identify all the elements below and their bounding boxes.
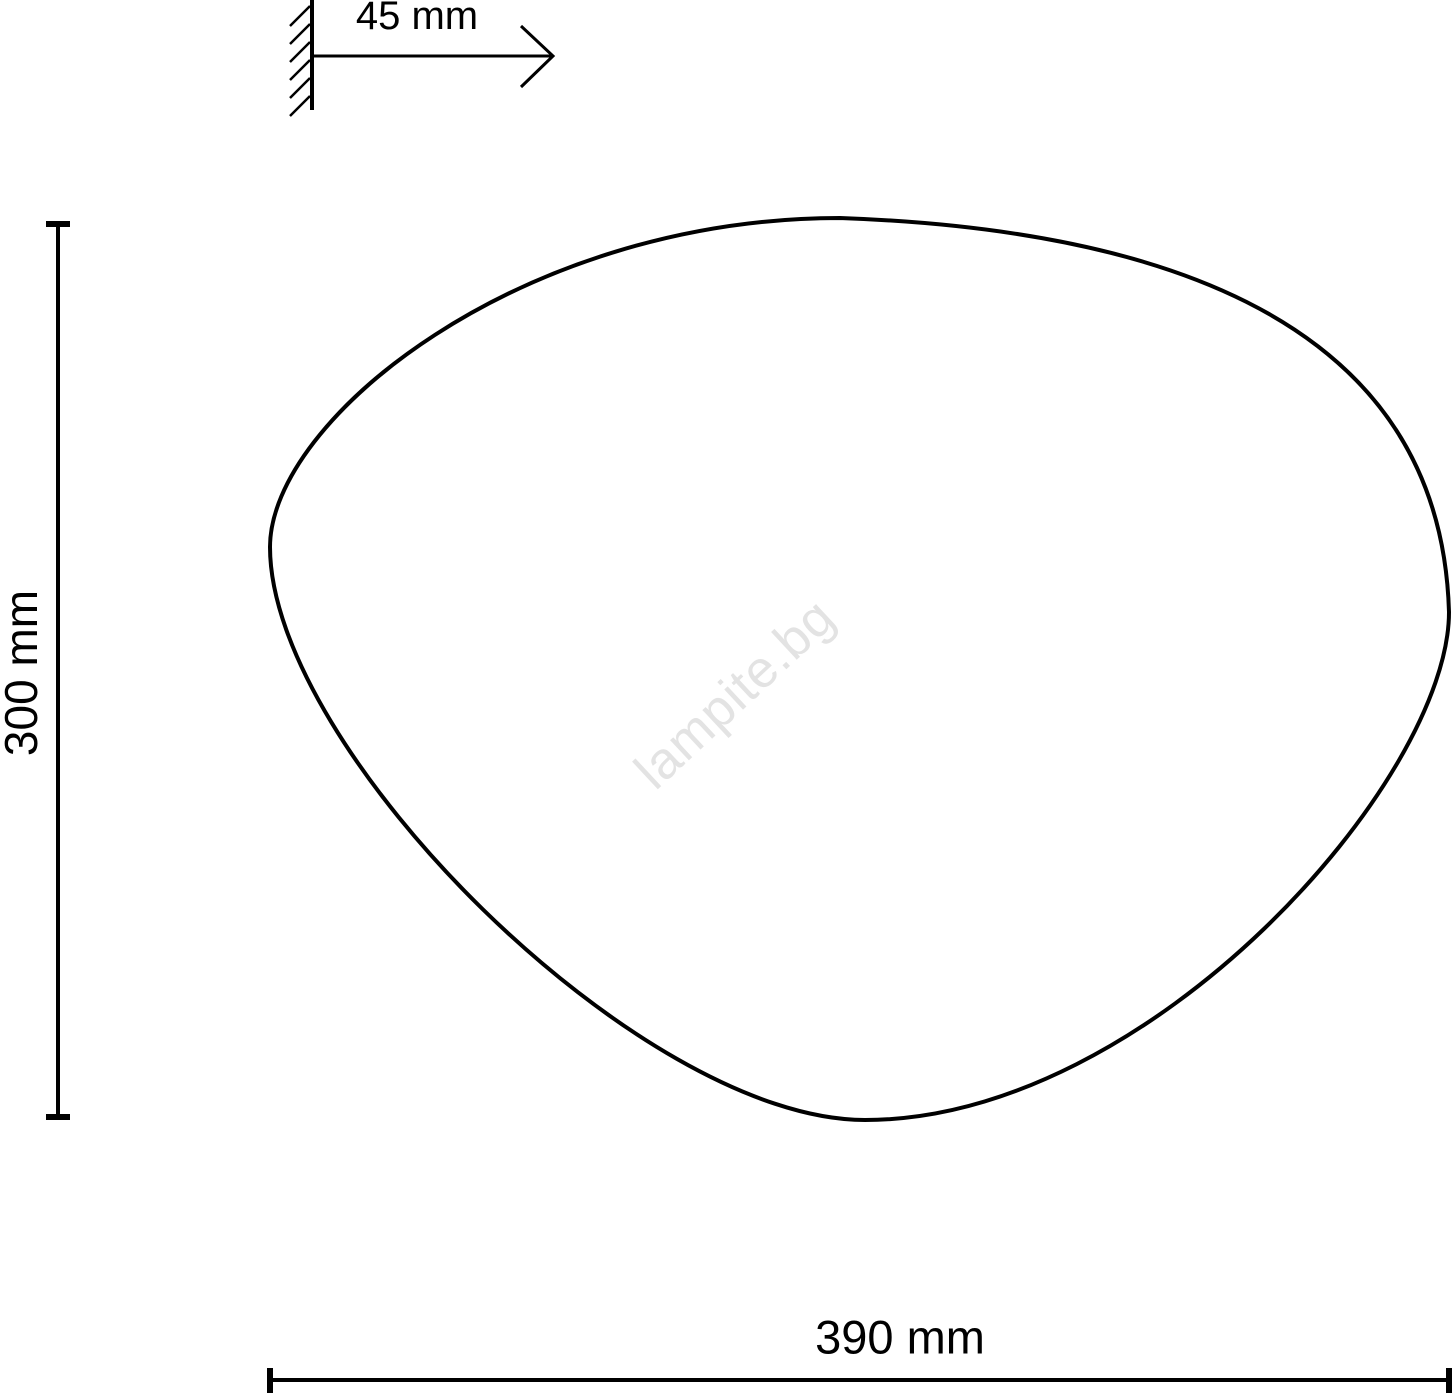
wall-hatch-strokes [290,6,310,116]
height-dimension-line [46,224,70,1117]
wall-hatch-icon [290,0,312,116]
dimension-diagram: 45 mm 300 mm 390 mm lampite.bg [0,0,1453,1394]
width-dimension-line [270,1368,1449,1393]
height-dimension-label: 300 mm [0,590,44,756]
depth-dimension-label: 45 mm [356,0,478,36]
width-dimension-label: 390 mm [815,1314,985,1361]
lamp-shade-outline [270,218,1449,1120]
lamp-shade-outline-path [270,218,1449,1120]
